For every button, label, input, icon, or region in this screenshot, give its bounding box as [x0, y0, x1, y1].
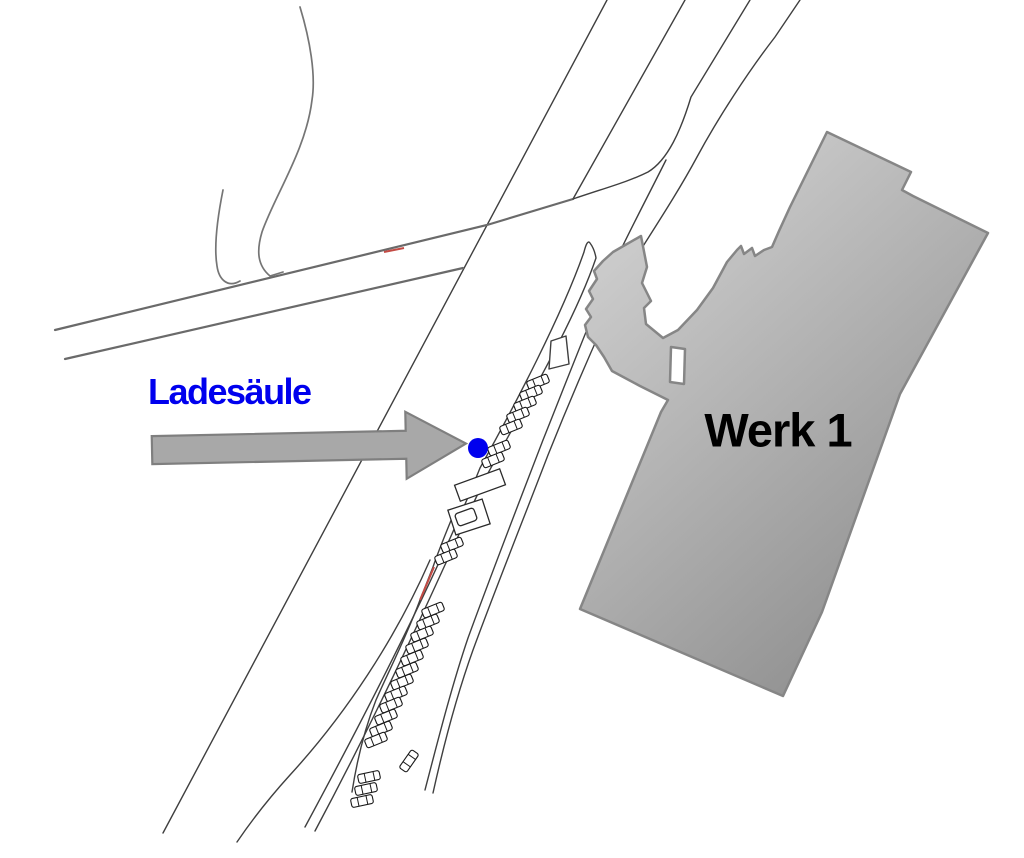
forest-path-short — [216, 190, 240, 284]
forest-path-long — [259, 7, 314, 276]
parking-triangle-island — [549, 336, 569, 369]
parked-car — [399, 749, 419, 772]
building-label: Werk 1 — [704, 407, 851, 454]
charging-station-label: Ladesäule — [148, 374, 311, 410]
median-island-outline — [305, 242, 596, 831]
site-map-drawing — [0, 0, 1024, 858]
parked-car — [350, 794, 373, 807]
parked-car — [354, 782, 377, 795]
parked-car — [357, 770, 380, 783]
main-road-right-edge-upper — [573, 0, 685, 199]
carport-structure — [455, 469, 506, 501]
site-plan: Ladesäule Werk 1 — [0, 0, 1024, 858]
pointer-arrow-icon — [151, 411, 466, 485]
west-road-upper-edge — [55, 199, 573, 330]
charging-station-marker — [468, 438, 488, 458]
